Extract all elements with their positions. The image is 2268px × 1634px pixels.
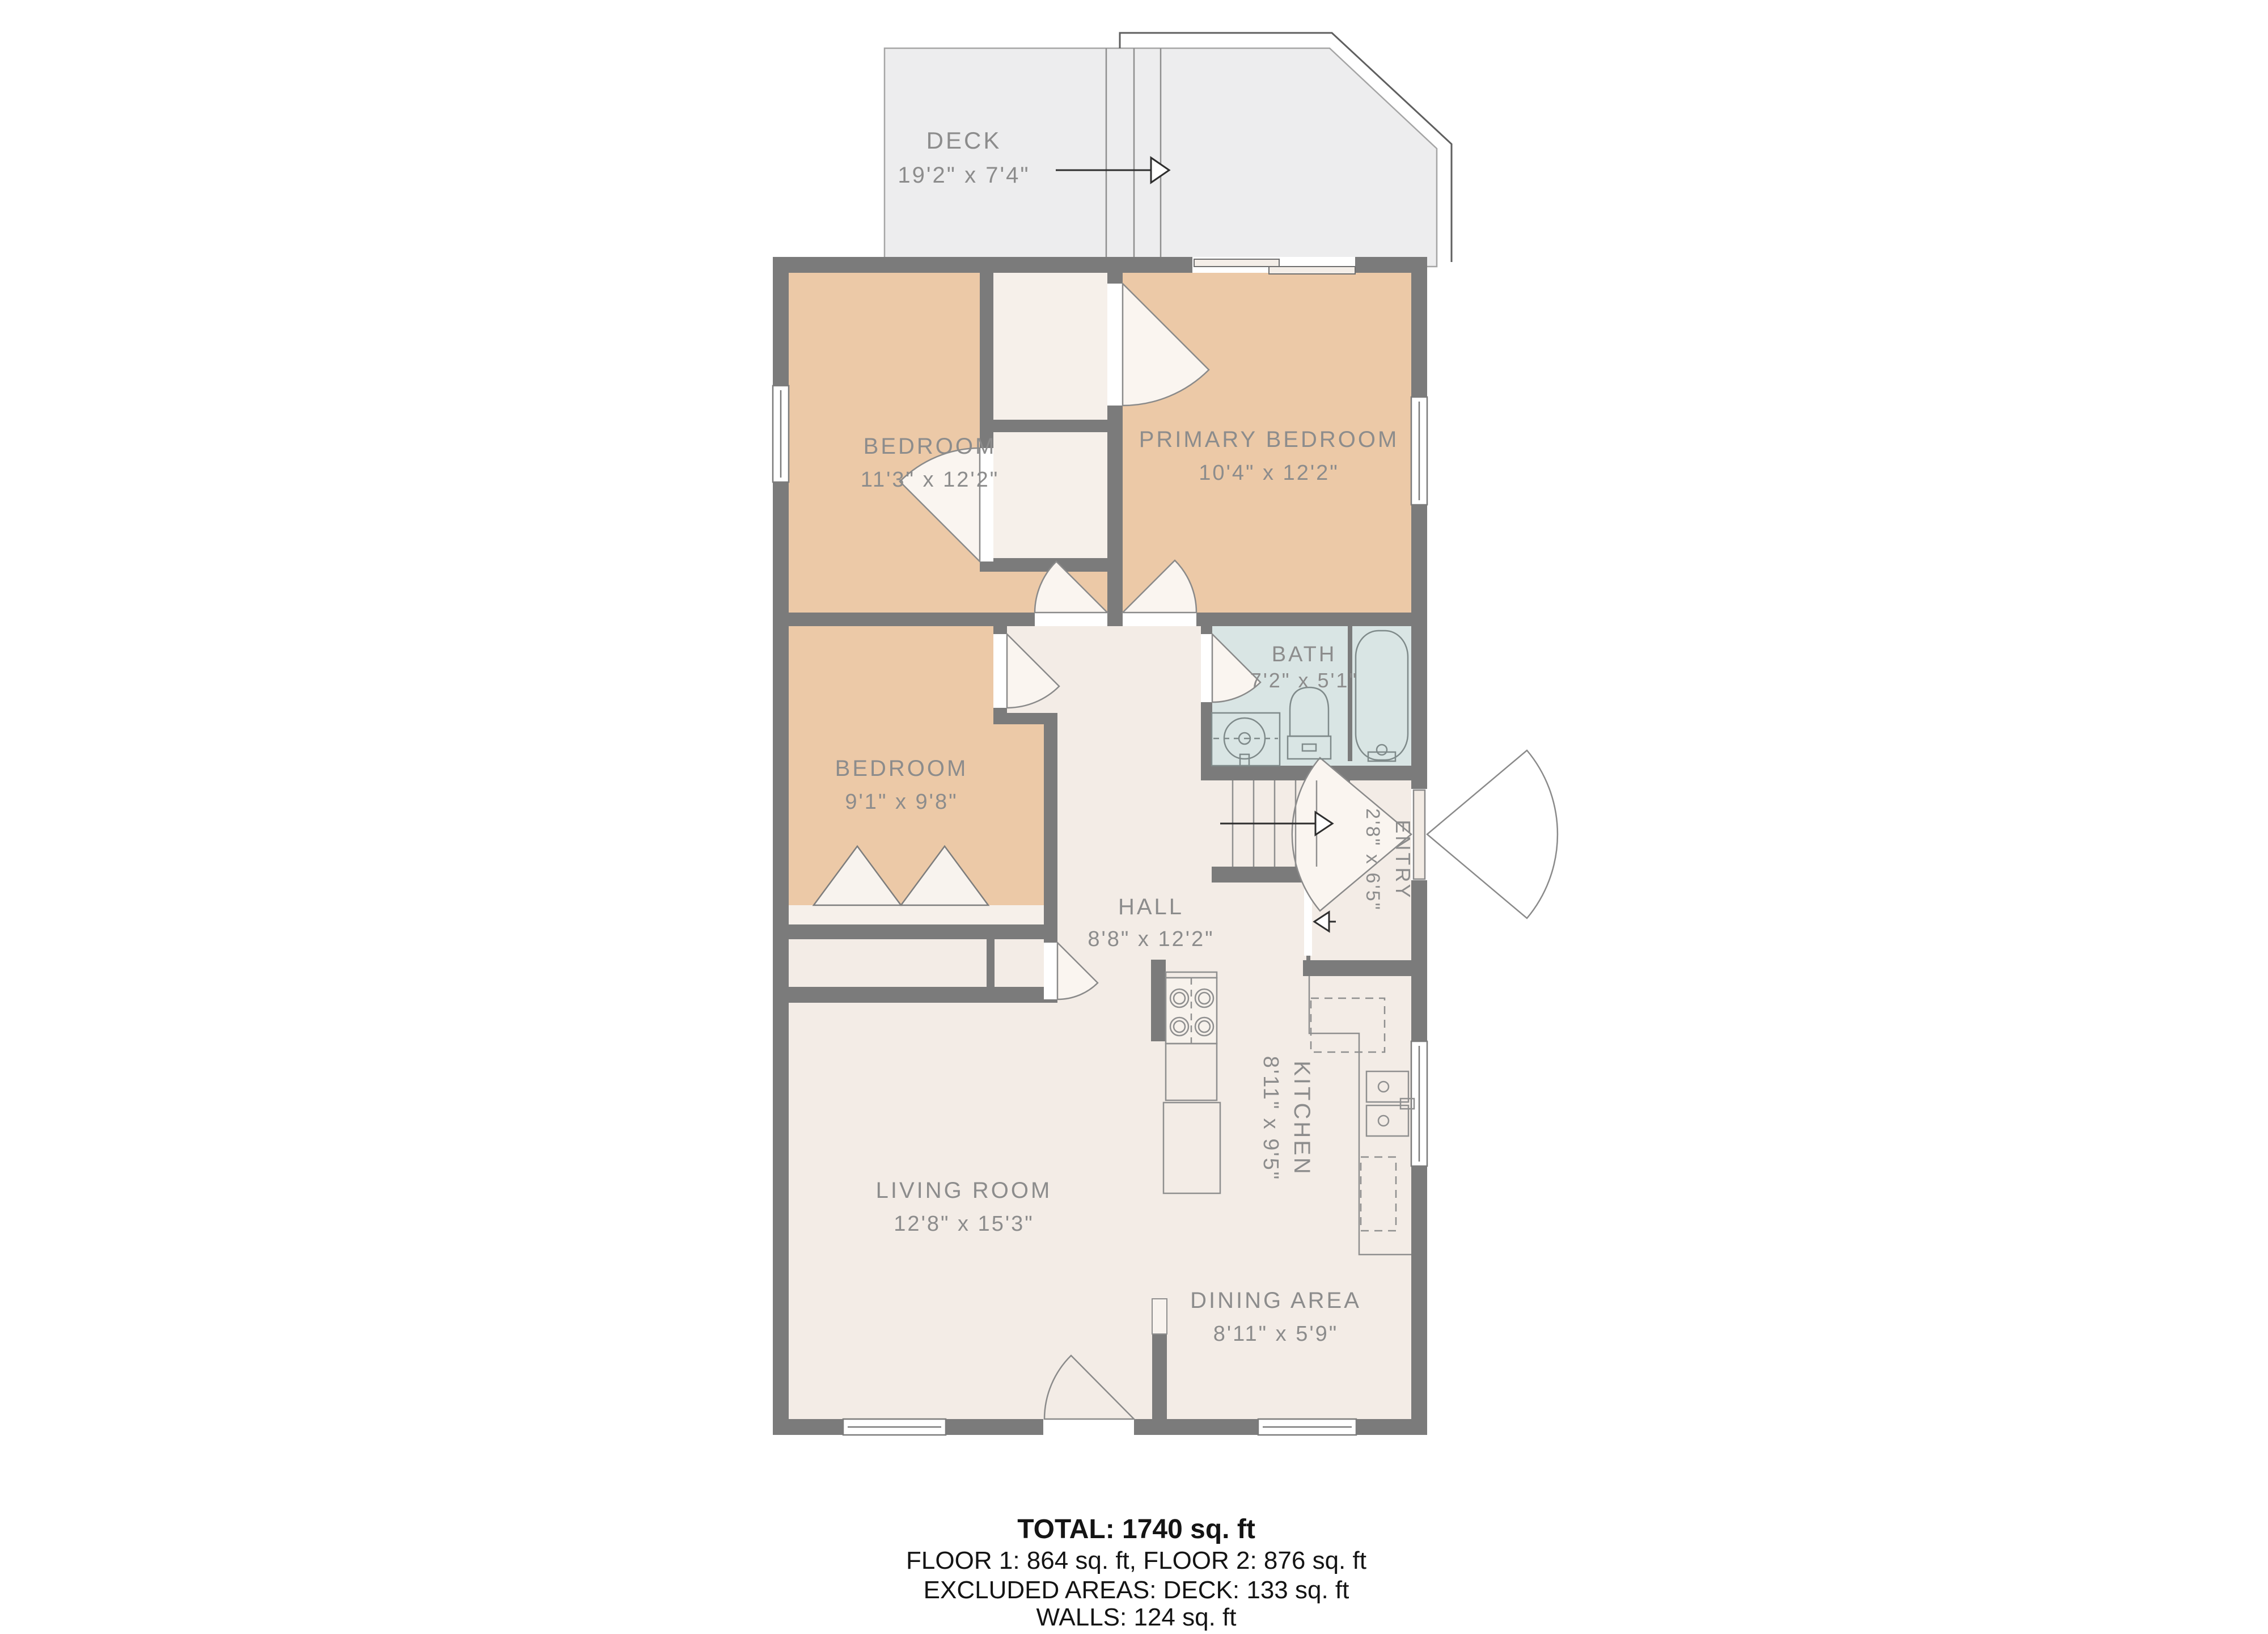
gap-closet-primary (1107, 284, 1123, 406)
wall-entry-kitchen (1303, 960, 1411, 976)
bedroom2-dims: 9'1" x 9'8" (845, 790, 958, 814)
living-label: LIVING ROOM (876, 1178, 1052, 1203)
stove-icon (1166, 972, 1217, 1044)
window-dining-bottom (1258, 1419, 1356, 1435)
wall-closet-bottom (980, 558, 1107, 572)
gap-bedroom1-door (1035, 613, 1107, 626)
gap-closet-bedroom1 (980, 448, 993, 561)
wall-bath-divider (1348, 626, 1352, 761)
bedroom1-label: BEDROOM (864, 434, 997, 459)
floorplan-canvas: DECK 19'2" x 7'4" (0, 0, 2268, 1634)
summary-excluded: EXCLUDED AREAS: DECK: 133 sq. ft (924, 1576, 1349, 1604)
wall-bed2-right-lower (1044, 724, 1057, 924)
door-swing-entry-out (1427, 750, 1558, 918)
wall-cap-living-dining (1152, 1299, 1167, 1334)
window-living-bottom (843, 1419, 946, 1435)
room-bedroom-2-ext (993, 724, 1044, 905)
wall-bed2-closet-bottom (789, 924, 1057, 939)
wall-closet-divider (993, 420, 1107, 432)
hall-label: HALL (1118, 894, 1184, 919)
bath-label: BATH (1272, 643, 1337, 666)
living-dims: 12'8" x 15'3" (894, 1212, 1034, 1236)
gap-primary-door (1123, 613, 1196, 626)
wall-living-top (789, 987, 1057, 1003)
gap-bedroom2-door (993, 634, 1007, 708)
wall-bed2-jog (993, 713, 1057, 724)
bath-dims: 7'2" x 5'1" (1250, 669, 1358, 692)
window-bedroom1-left (773, 386, 789, 482)
deck-dims: 19'2" x 7'4" (898, 163, 1030, 188)
deck-label: DECK (926, 127, 1002, 154)
closet-between-bedrooms (993, 273, 1107, 558)
wall-kitchen-stub (1151, 960, 1166, 1041)
dining-label: DINING AREA (1190, 1288, 1361, 1313)
bedroom1-dims: 11'3" x 12'2" (861, 468, 1000, 492)
floorplan-page: DECK 19'2" x 7'4" (0, 0, 2268, 1634)
entry-door-leaf (1414, 790, 1425, 879)
hall-dims: 8'8" x 12'2" (1088, 927, 1214, 951)
primary-dims: 10'4" x 12'2" (1199, 461, 1339, 485)
summary-total: TOTAL: 1740 sq. ft (1017, 1514, 1255, 1544)
kitchen-label: KITCHEN (1289, 1061, 1314, 1176)
window-primary-right (1411, 397, 1427, 505)
wall-hallnook-divider (987, 939, 995, 988)
summary-floors: FLOOR 1: 864 sq. ft, FLOOR 2: 876 sq. ft (906, 1547, 1366, 1574)
summary-walls: WALLS: 124 sq. ft (1036, 1603, 1237, 1631)
deck-area: DECK 19'2" x 7'4" (885, 33, 1452, 267)
sliding-door-deck (1192, 257, 1355, 274)
bedroom2-closet-strip (789, 905, 1044, 924)
bedroom2-label: BEDROOM (835, 756, 968, 781)
kitchen-dims: 8'11" x 9'5" (1259, 1056, 1283, 1181)
dining-dims: 8'11" x 5'9" (1213, 1322, 1338, 1346)
gap-front-door (1043, 1419, 1134, 1435)
gap-hallnook-door (1044, 943, 1057, 999)
area-summary: TOTAL: 1740 sq. ft FLOOR 1: 864 sq. ft, … (906, 1514, 1366, 1631)
gap-bath-door (1201, 634, 1212, 702)
entry-label: ENTRY (1391, 820, 1415, 900)
primary-label: PRIMARY BEDROOM (1139, 427, 1399, 452)
entry-dims: 2'8" x 6'5" (1362, 808, 1383, 911)
wall-living-dining (1152, 1334, 1167, 1419)
